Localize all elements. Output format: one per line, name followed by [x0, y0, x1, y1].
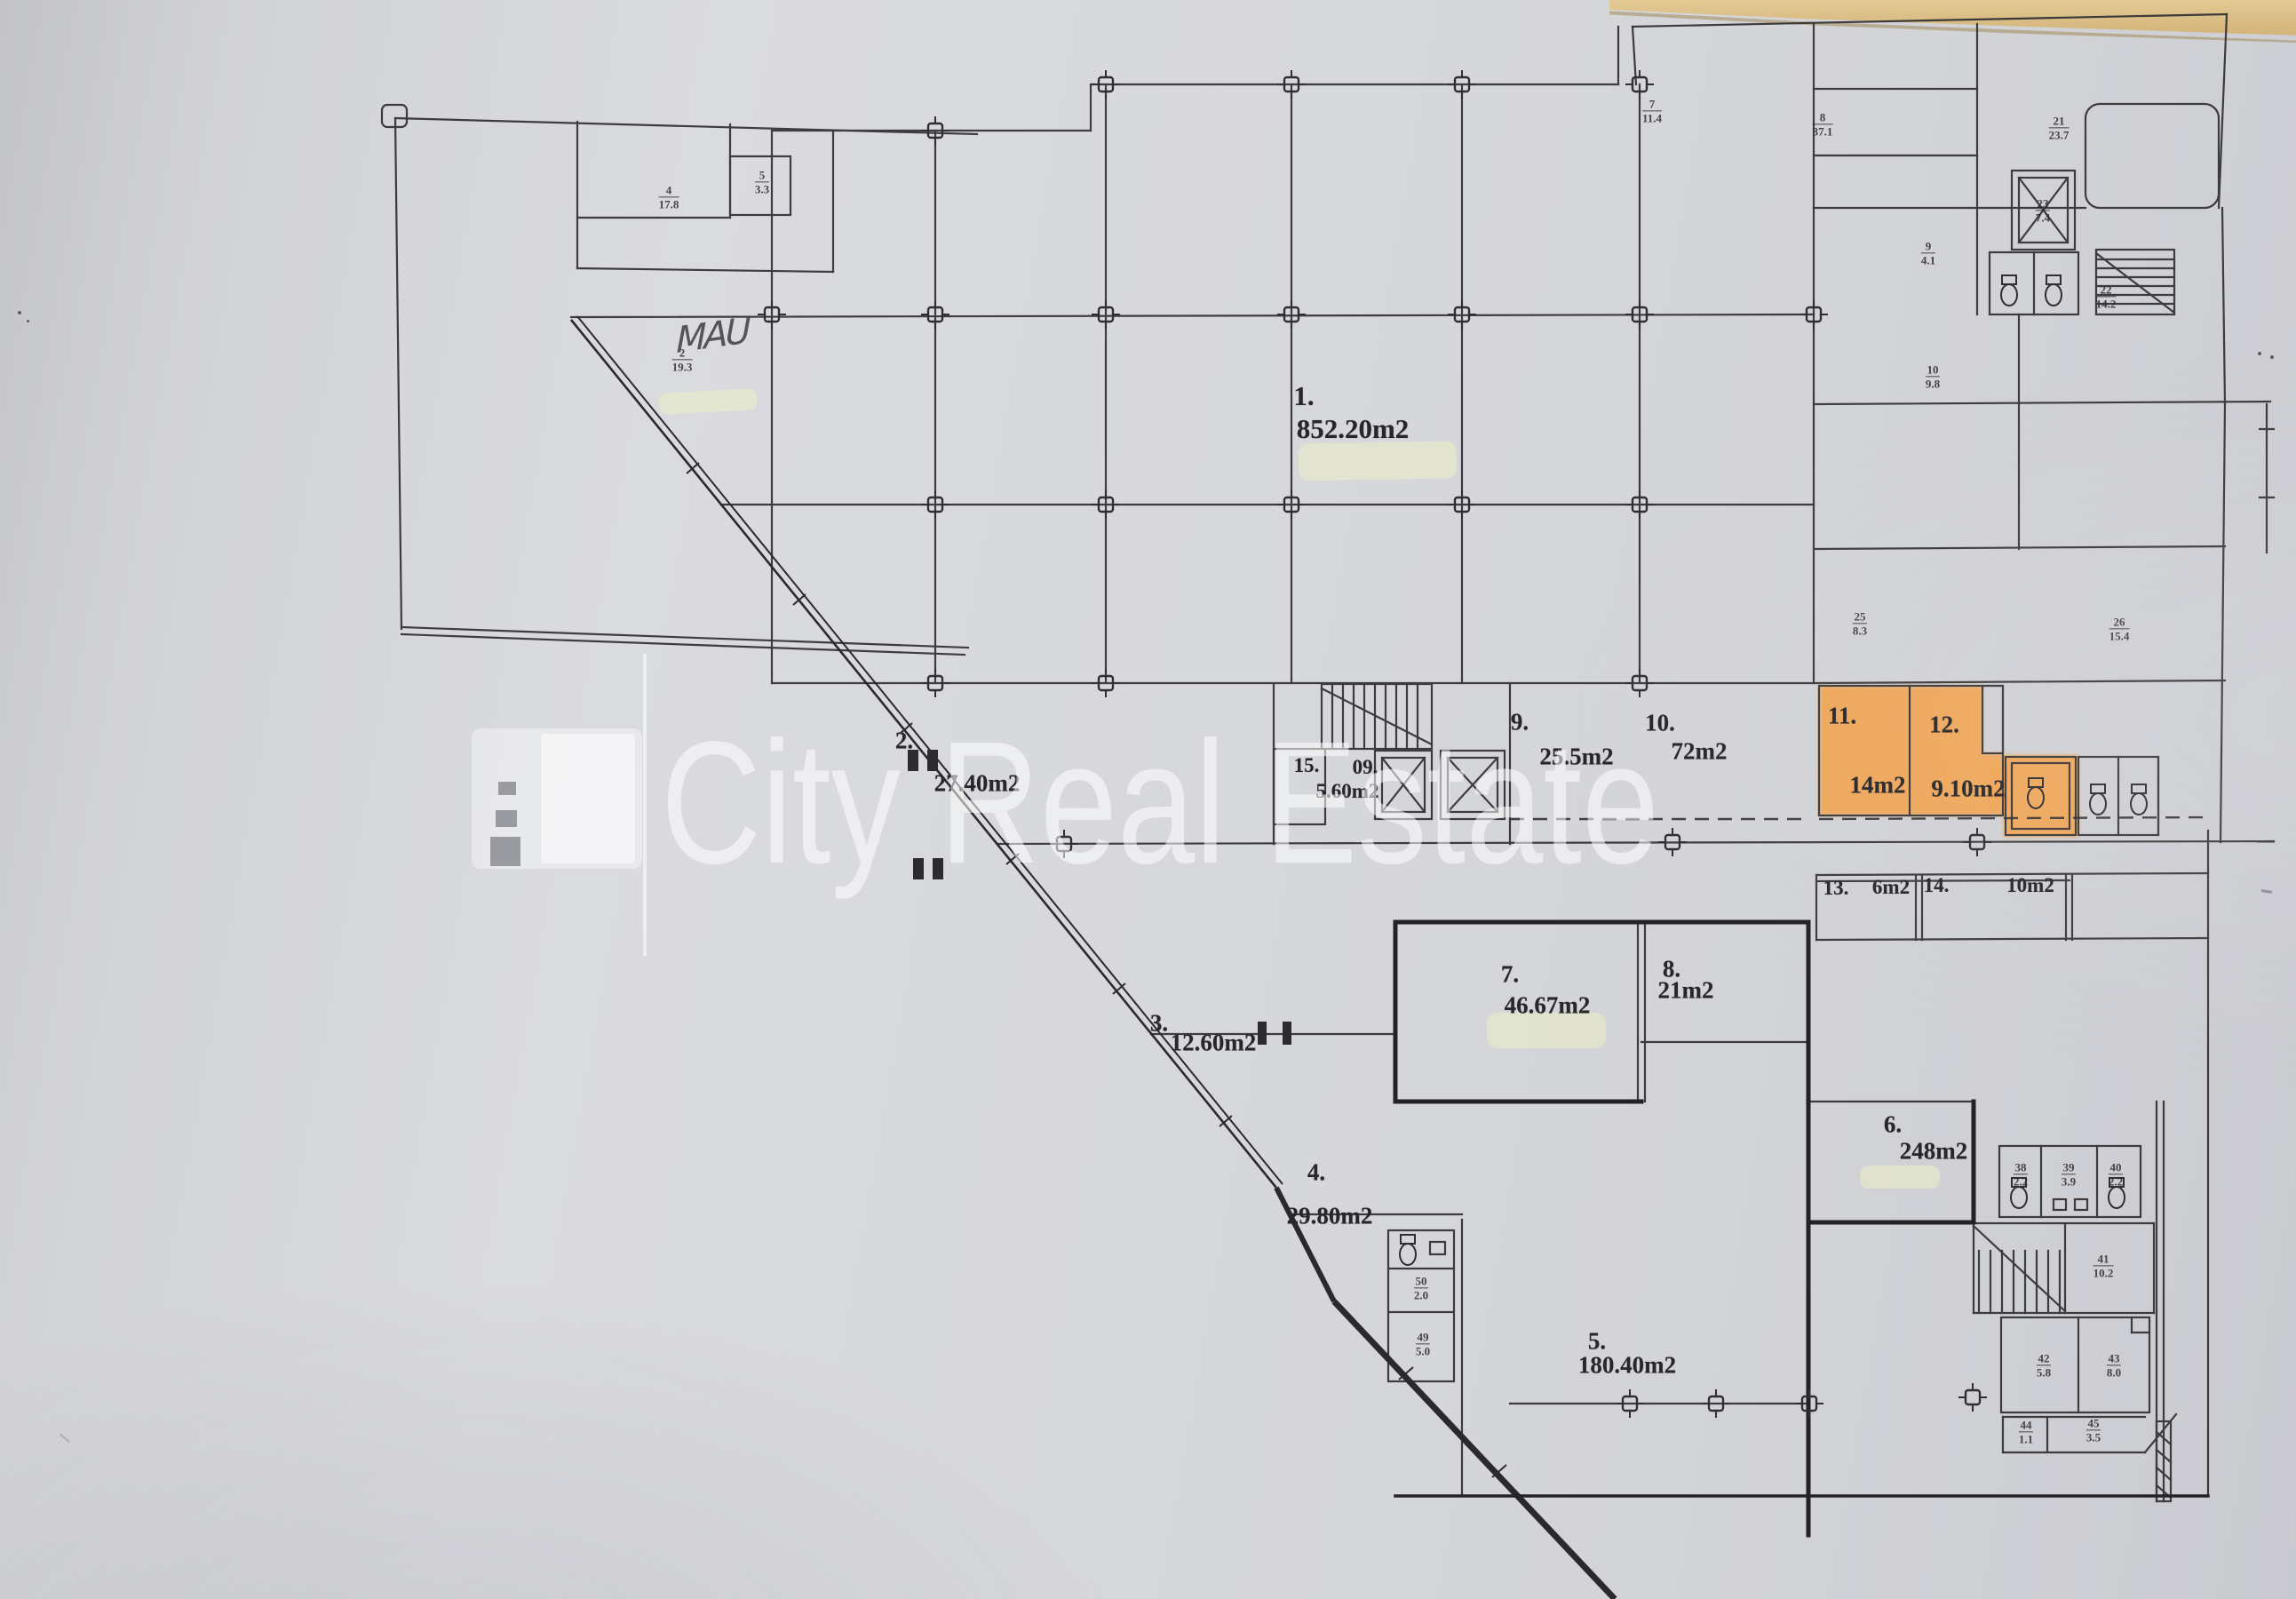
- room-4-area: 29.80m2: [1287, 1203, 1373, 1230]
- minor-room-tag: 258.3: [1853, 610, 1867, 636]
- minor-room-tag: 417.8: [659, 184, 679, 210]
- room-14-number: 14.: [1924, 874, 1950, 897]
- minor-room-tag: 382.2: [2014, 1161, 2028, 1187]
- minor-room-tag: 441.1: [2019, 1419, 2033, 1444]
- room-3-area: 12.60m2: [1171, 1030, 1257, 1057]
- minor-room-tag: 2214.2: [2096, 283, 2117, 309]
- pen-dot: [18, 311, 21, 314]
- room-1-number: 1.: [1293, 380, 1314, 412]
- room-10-area: 72m2: [1672, 738, 1728, 766]
- minor-room-tag: 4110.2: [2093, 1253, 2114, 1278]
- pen-dot: [27, 320, 29, 322]
- logo-pixel-square: [498, 782, 516, 795]
- minor-room-tag: 502.0: [1414, 1275, 1428, 1301]
- room-5-area: 180.40m2: [1578, 1352, 1676, 1380]
- watermark-text: City Real Estate: [661, 716, 1659, 890]
- minor-room-tag: 109.8: [1926, 363, 1940, 389]
- minor-room-tag: 53.3: [755, 169, 769, 195]
- room-12-number: 12.: [1929, 712, 1959, 739]
- room-13-area: 6m2: [1872, 876, 1910, 899]
- logo-pixel-square: [496, 810, 517, 827]
- minor-room-tag: 495.0: [1416, 1331, 1430, 1356]
- minor-room-tag: 711.4: [1642, 98, 1662, 123]
- room-1-area: 852.20m2: [1297, 413, 1410, 445]
- minor-room-tag: 2615.4: [2109, 616, 2130, 641]
- minor-room-tag: 94.1: [1921, 240, 1935, 266]
- room-11-number: 11.: [1828, 703, 1856, 730]
- room-6-number: 6.: [1884, 1111, 1902, 1139]
- minor-room-tag: 402.2: [2109, 1161, 2123, 1187]
- site-boundary-diagonal: [571, 316, 1615, 1599]
- logo-white-square: [541, 734, 635, 863]
- room-4-number: 4.: [1307, 1159, 1325, 1187]
- minor-room-tag: 438.0: [2107, 1352, 2121, 1378]
- pen-dot: [2258, 352, 2261, 355]
- logo-pixel-square: [490, 837, 520, 866]
- room-8-area: 21m2: [1658, 977, 1714, 1005]
- pen-dot: [2270, 355, 2274, 359]
- minor-room-tag: 837.1: [1813, 111, 1833, 137]
- room-12-area: 9.10m2: [1931, 776, 2005, 803]
- room-13-number: 13.: [1823, 877, 1849, 900]
- minor-room-tag: 2123.7: [2049, 115, 2070, 140]
- city-real-estate-logo-icon: [472, 728, 642, 869]
- minor-room-tag: 393.9: [2062, 1161, 2076, 1187]
- room-6-area: 248m2: [1900, 1138, 1968, 1165]
- room-7-area: 46.67m2: [1505, 992, 1591, 1020]
- minor-room-tag: 237.4: [2036, 197, 2050, 223]
- watermark-divider: [643, 654, 647, 956]
- room-14-area: 10m2: [2006, 874, 2054, 897]
- minor-room-tag: 425.8: [2037, 1352, 2051, 1378]
- orange-highlight-rooms-11-12: [1819, 686, 2078, 837]
- room-11-area: 14m2: [1850, 772, 1906, 799]
- floorplan-photo: 1. 852.20m2 2. 27.40m2 3. 12.60m2 4. 29.…: [0, 0, 2296, 1599]
- room-7-number: 7.: [1501, 961, 1519, 989]
- minor-room-tag: 453.5: [2086, 1417, 2101, 1443]
- room-3-number: 3.: [1150, 1010, 1168, 1038]
